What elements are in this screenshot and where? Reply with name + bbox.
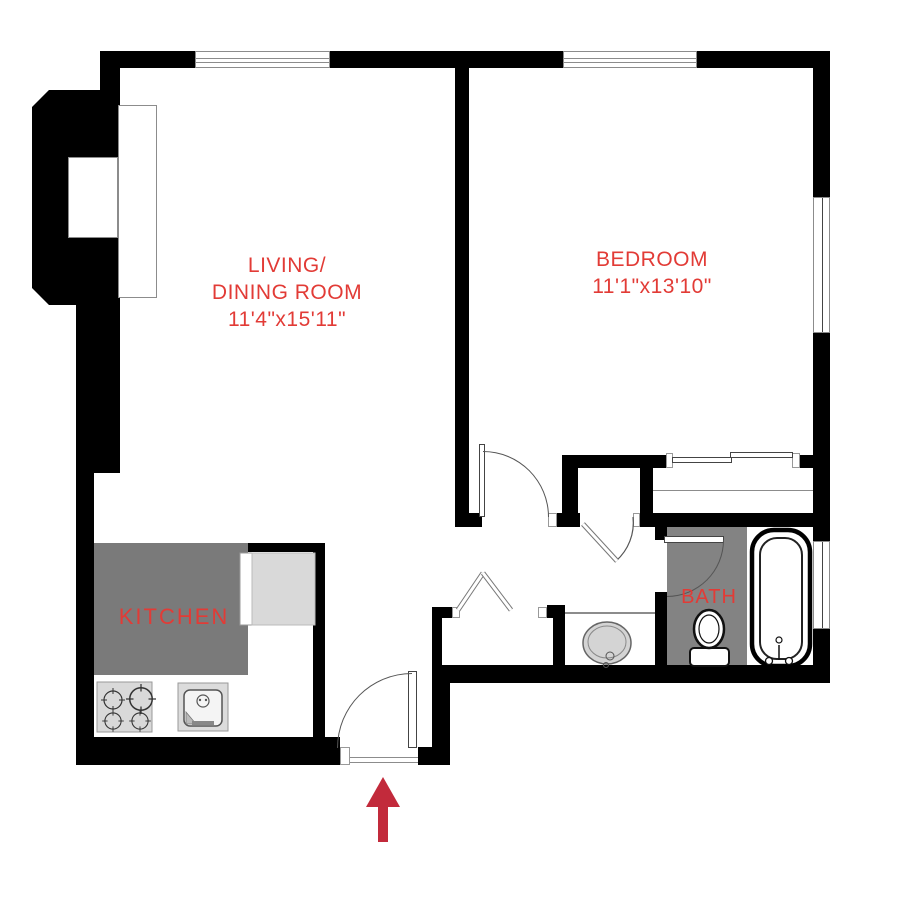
closet-shelf-line: [653, 490, 813, 491]
entry-door-jamb: [340, 747, 350, 765]
bifold-door-panel[interactable]: [483, 573, 511, 610]
wall-left-thick: [76, 302, 120, 473]
bath-label-text: BATH: [681, 586, 737, 608]
window-mullion: [196, 62, 329, 63]
bedroom-label: BEDROOM 11'1"x13'10": [542, 246, 762, 300]
wall-vanity-west-stub: [547, 605, 565, 618]
bifold-door-panel[interactable]: [458, 573, 483, 610]
wall-bath-west-lower: [655, 592, 667, 667]
bedroom-door-arc: [483, 451, 549, 517]
wall-top-mid: [330, 51, 563, 68]
wall-kitchen-east: [313, 543, 325, 737]
wall-left-lower: [76, 473, 94, 737]
wall-bottom-left: [76, 737, 340, 765]
bath-label: BATH: [676, 586, 742, 609]
wall-top-right: [697, 51, 830, 68]
living-label-line1: LIVING/: [177, 252, 397, 279]
kitchen-sink: [178, 683, 228, 731]
bedroom-top-window: [563, 51, 697, 68]
window-mullion: [564, 62, 696, 63]
bifold-door-panel-face: [458, 573, 483, 610]
wall-closet-west: [432, 618, 442, 667]
wall-niche: [68, 157, 118, 238]
window-mullion: [822, 542, 823, 628]
hall-closet-door-leaf[interactable]: [583, 524, 617, 561]
door-jamb: [633, 513, 640, 527]
window-mullion: [564, 58, 696, 59]
wall-hall-north-b: [635, 513, 813, 527]
entry-threshold-line: [350, 757, 418, 758]
hall-closet-door-arc: [616, 517, 633, 561]
floor-plan: LIVING/ DINING ROOM 11'4"x15'11" BEDROOM…: [0, 0, 900, 900]
living-dining-label: LIVING/ DINING ROOM 11'4"x15'11": [177, 252, 397, 333]
bath-right-window: [813, 541, 830, 629]
wall-living-bedroom-divider: [455, 68, 469, 515]
kitchen-label: KITCHEN: [118, 604, 230, 630]
wall-right-upper: [813, 51, 830, 197]
wall-slider-east-stub: [800, 455, 813, 468]
entry-door-arc: [337, 673, 412, 748]
living-dimensions: 11'4"x15'11": [177, 306, 397, 333]
entry-arrow-shaft: [378, 805, 388, 842]
wall-closet-west-stub: [432, 607, 452, 618]
kitchen-label-text: KITCHEN: [119, 604, 230, 629]
radiator-enclosure: [118, 105, 157, 298]
sliding-closet-door-panel[interactable]: [672, 457, 732, 463]
bifold-door-panel-face: [483, 573, 511, 610]
bathroom-sink: [583, 622, 631, 668]
sliding-closet-door-panel[interactable]: [730, 452, 793, 458]
living-label-line2: DINING ROOM: [177, 279, 397, 306]
wall-niche-east: [640, 455, 653, 517]
bedroom-right-window: [813, 197, 830, 333]
stove: [97, 682, 156, 732]
wall-vanity-west: [553, 618, 565, 667]
wall-right-mid: [813, 333, 830, 541]
window-mullion: [196, 58, 329, 59]
entry-threshold-line: [350, 762, 418, 763]
closet-door-jamb: [452, 607, 460, 618]
refrigerator: [252, 553, 315, 625]
living-room-window: [195, 51, 330, 68]
window-mullion: [822, 198, 823, 332]
wall-kitchen-north: [248, 543, 325, 552]
vanity-counter-line: [565, 612, 655, 614]
entry-arrow-head: [366, 777, 400, 807]
closet-slider-jamb: [792, 453, 800, 468]
bedroom-dimensions: 11'1"x13'10": [542, 273, 762, 300]
bathtub: [752, 530, 810, 666]
hall-closet-door-leaf-face: [583, 524, 617, 561]
wall-bottom-hall-bath: [432, 665, 830, 683]
wall-divider-foot: [455, 513, 482, 527]
closet-door-jamb: [538, 607, 547, 618]
bedroom-label-text: BEDROOM: [542, 246, 762, 273]
door-jamb: [548, 513, 557, 527]
